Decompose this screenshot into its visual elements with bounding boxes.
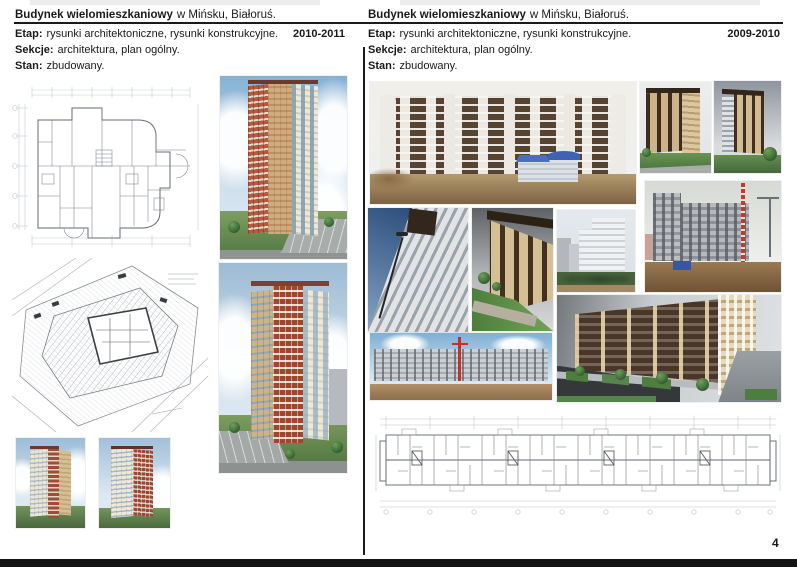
building-photo-large [370, 82, 636, 204]
scan-artifact [30, 0, 320, 5]
tower-render-1 [220, 76, 347, 259]
roof [248, 80, 318, 84]
building-facade [384, 96, 622, 174]
tree [478, 272, 490, 284]
lawn-strip [745, 389, 776, 400]
concrete-tower [653, 193, 681, 261]
white-building-photo [557, 210, 635, 292]
project-name: Budynek wielomieszkaniowy [15, 9, 173, 21]
building-face-right [59, 450, 71, 515]
building-face-right [292, 84, 318, 237]
lamp-head [396, 232, 408, 236]
tree [615, 369, 626, 380]
tree [229, 422, 240, 433]
site-plan-drawing [12, 258, 208, 432]
column-divider [363, 47, 365, 555]
tower-render-2 [219, 263, 347, 473]
sections-row-right: Sekcje:architektura, plan ogólny. [368, 44, 780, 57]
years-badge: 2010-2011 [293, 28, 345, 41]
roof [251, 281, 329, 286]
sections-row-left: Sekcje:architektura, plan ogólny. [15, 44, 345, 57]
tree [492, 282, 501, 291]
parapet [646, 88, 700, 93]
annex-roof [548, 151, 580, 160]
annex-roof [516, 155, 550, 162]
annex-building [518, 160, 578, 182]
project-title-right: Budynek wielomieszkaniowyw Mińsku, Biało… [368, 9, 780, 22]
roof [111, 446, 153, 449]
building-face-right [133, 449, 153, 517]
stage-row-left: Etap:rysunki architektoniczne, rysunki k… [15, 28, 345, 41]
scan-artifact [400, 0, 760, 5]
portfolio-page: Budynek wielomieszkaniowyw Mińsku, Biało… [0, 0, 797, 567]
page-number: 4 [772, 536, 779, 550]
construction-photo-2 [370, 333, 552, 400]
balcony-stack [722, 97, 734, 153]
construction-photo-1 [645, 181, 781, 292]
building-face-left [111, 448, 133, 518]
floor-plan-drawing [8, 78, 206, 255]
project-title-left: Budynek wielomieszkaniowyw Mińsku, Biało… [15, 9, 345, 22]
crane-gray [769, 197, 771, 257]
building-photo-low-angle [368, 208, 468, 332]
stair-core [444, 94, 455, 174]
roof [30, 446, 59, 449]
tree [642, 148, 651, 157]
footer-bar [0, 559, 797, 567]
years-badge: 2009-2010 [727, 28, 780, 41]
tree [324, 217, 334, 227]
building-face-left [30, 449, 48, 517]
project-location: w Mińsku, Białoruś. [530, 9, 629, 21]
status-row-right: Stan:zbudowany. [368, 60, 780, 73]
tree [228, 221, 240, 233]
stage-text: Etap:rysunki architektoniczne, rysunki k… [368, 28, 631, 41]
brown-corner-panel [407, 208, 438, 235]
wide-floor-plan-drawing [368, 409, 788, 517]
project-name: Budynek wielomieszkaniowy [368, 9, 526, 21]
building-face-left [248, 84, 268, 234]
tower-render-small-2 [99, 438, 170, 528]
dirt-strip [557, 285, 635, 292]
stair-core [504, 94, 515, 174]
building-face-left [251, 290, 273, 440]
mid-rise-render-2 [714, 81, 781, 173]
header-underline [14, 22, 783, 24]
dirt-foreground [370, 384, 552, 400]
courtyard-render [472, 208, 553, 331]
tree [656, 372, 668, 384]
long-building-render [557, 295, 781, 402]
stage-row-right: Etap:rysunki architektoniczne, rysunki k… [368, 28, 780, 41]
building-face-side [682, 89, 700, 155]
tree [285, 449, 295, 459]
dirt-mound [370, 168, 414, 190]
crane-brace [452, 343, 468, 345]
tree [763, 147, 777, 161]
crane-red [741, 183, 745, 269]
tower-render-small-1 [16, 438, 85, 528]
stage-text: Etap:rysunki architektoniczne, rysunki k… [15, 28, 278, 41]
building-face-mid [48, 448, 59, 518]
mid-rise-render-1 [640, 82, 711, 173]
corner-tower [610, 94, 626, 178]
building-face-mid [273, 285, 303, 443]
building-face-front [734, 92, 764, 154]
status-row-left: Stan:zbudowany. [15, 60, 345, 73]
project-location: w Mińsku, Białoruś. [177, 9, 276, 21]
building-face-right [303, 290, 329, 441]
lawn-strip [557, 396, 656, 402]
tree [331, 441, 343, 453]
dirt-foreground [645, 262, 781, 292]
building-face-mid [268, 82, 292, 234]
building-face-front [646, 91, 682, 154]
bushes [557, 272, 635, 286]
blue-container [673, 261, 691, 270]
background-building [327, 369, 347, 425]
panel-building [374, 349, 548, 381]
corner-tower [380, 94, 396, 176]
crane-jib [757, 197, 779, 199]
